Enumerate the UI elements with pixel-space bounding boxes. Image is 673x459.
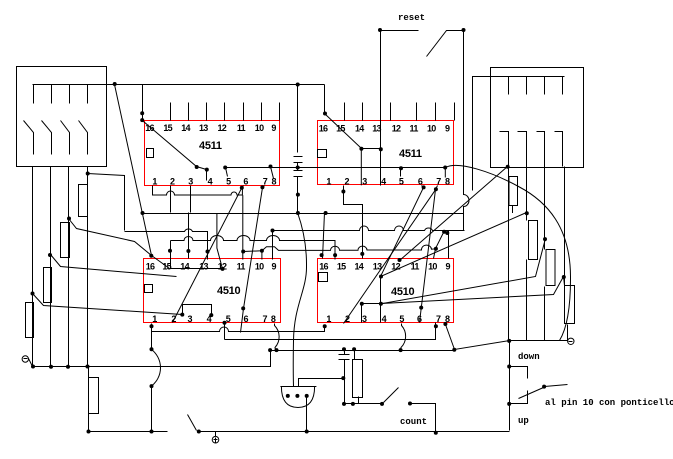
- svg-text:12: 12: [217, 123, 226, 133]
- svg-text:up: up: [518, 416, 529, 426]
- svg-text:3: 3: [362, 314, 367, 324]
- svg-text:2: 2: [170, 177, 175, 187]
- svg-text:14: 14: [181, 123, 190, 133]
- svg-text:7: 7: [263, 177, 268, 187]
- svg-text:5: 5: [399, 176, 404, 186]
- svg-text:3: 3: [188, 314, 193, 324]
- svg-text:11: 11: [410, 124, 419, 134]
- svg-text:9: 9: [271, 123, 276, 133]
- svg-text:4510: 4510: [391, 286, 414, 298]
- svg-text:12: 12: [391, 262, 400, 272]
- svg-text:4510: 4510: [217, 285, 240, 297]
- svg-text:2: 2: [345, 176, 350, 186]
- svg-text:15: 15: [163, 123, 172, 133]
- svg-text:6: 6: [417, 314, 422, 324]
- svg-text:5: 5: [226, 314, 231, 324]
- svg-text:13: 13: [372, 124, 381, 134]
- svg-text:8: 8: [272, 177, 277, 187]
- svg-text:8: 8: [445, 176, 450, 186]
- svg-text:5: 5: [399, 314, 404, 324]
- svg-text:9: 9: [272, 262, 277, 272]
- svg-text:15: 15: [337, 262, 346, 272]
- svg-text:16: 16: [319, 124, 328, 134]
- svg-text:12: 12: [218, 262, 227, 272]
- svg-text:7: 7: [263, 314, 268, 324]
- svg-text:14: 14: [180, 262, 189, 272]
- svg-text:14: 14: [354, 262, 363, 272]
- svg-text:4: 4: [207, 314, 212, 324]
- svg-text:8: 8: [271, 314, 276, 324]
- svg-text:9: 9: [445, 124, 450, 134]
- svg-text:16: 16: [145, 123, 154, 133]
- svg-text:13: 13: [199, 262, 208, 272]
- svg-text:15: 15: [336, 124, 345, 134]
- svg-text:1: 1: [326, 176, 331, 186]
- svg-text:count: count: [400, 417, 427, 427]
- svg-text:4511: 4511: [199, 140, 222, 152]
- svg-text:6: 6: [243, 314, 248, 324]
- svg-text:10: 10: [428, 262, 437, 272]
- svg-text:down: down: [518, 352, 540, 362]
- svg-text:10: 10: [255, 262, 264, 272]
- svg-text:5: 5: [226, 177, 231, 187]
- svg-text:1: 1: [326, 314, 331, 324]
- svg-text:12: 12: [392, 124, 401, 134]
- svg-text:15: 15: [162, 262, 171, 272]
- svg-text:al pin 10 con ponticello: al pin 10 con ponticello: [545, 398, 673, 408]
- svg-text:10: 10: [427, 124, 436, 134]
- svg-text:16: 16: [319, 262, 328, 272]
- svg-text:4: 4: [381, 176, 386, 186]
- svg-text:1: 1: [152, 177, 157, 187]
- svg-text:2: 2: [345, 314, 350, 324]
- svg-text:9: 9: [445, 262, 450, 272]
- svg-text:3: 3: [188, 177, 193, 187]
- svg-text:10: 10: [255, 123, 264, 133]
- svg-text:4: 4: [382, 314, 387, 324]
- svg-text:13: 13: [199, 123, 208, 133]
- svg-text:4: 4: [208, 177, 213, 187]
- svg-text:13: 13: [373, 262, 382, 272]
- svg-text:2: 2: [171, 314, 176, 324]
- svg-text:3: 3: [362, 176, 367, 186]
- svg-text:6: 6: [243, 177, 248, 187]
- svg-text:1: 1: [152, 314, 157, 324]
- svg-text:6: 6: [418, 176, 423, 186]
- svg-text:8: 8: [445, 314, 450, 324]
- svg-text:14: 14: [355, 124, 364, 134]
- svg-text:16: 16: [146, 262, 155, 272]
- svg-text:7: 7: [436, 176, 441, 186]
- svg-text:11: 11: [237, 123, 246, 133]
- svg-text:7: 7: [436, 314, 441, 324]
- svg-text:reset: reset: [398, 13, 425, 23]
- svg-text:11: 11: [411, 262, 420, 272]
- svg-text:4511: 4511: [399, 148, 422, 160]
- svg-text:11: 11: [237, 262, 246, 272]
